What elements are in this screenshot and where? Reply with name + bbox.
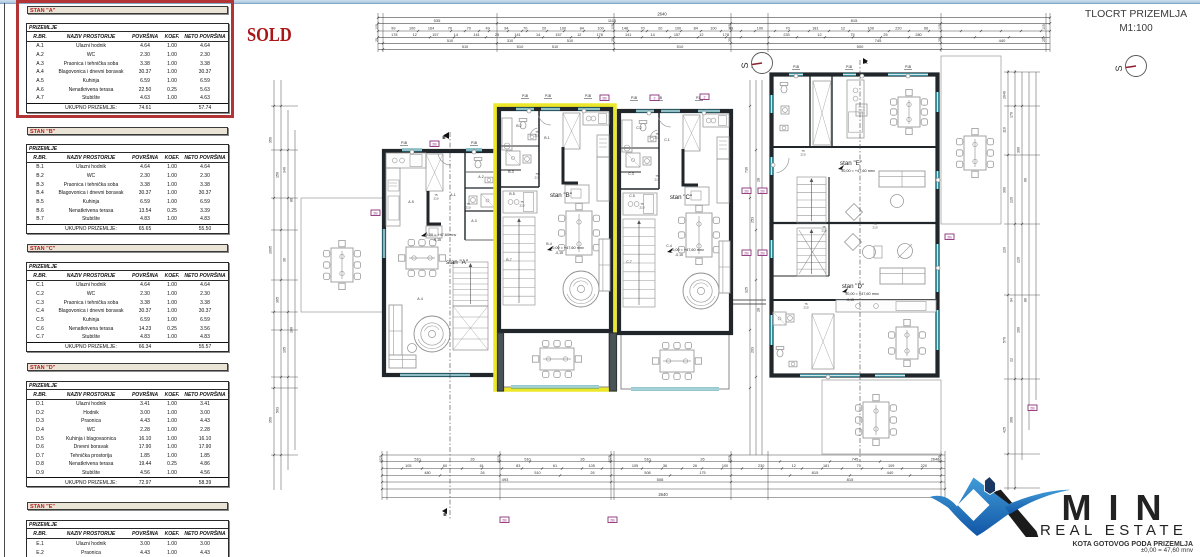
svg-text:2B: 2B — [502, 518, 507, 522]
svg-text:815: 815 — [812, 470, 819, 475]
svg-text:±0,00 = 47,60 mnv: ±0,00 = 47,60 mnv — [1141, 547, 1194, 554]
svg-text:440: 440 — [999, 38, 1006, 43]
svg-text:2B: 2B — [602, 96, 607, 100]
svg-text:350: 350 — [269, 137, 273, 143]
svg-text:1025: 1025 — [497, 455, 501, 462]
svg-text:12: 12 — [413, 33, 417, 37]
svg-text:A.1: A.1 — [450, 193, 455, 197]
svg-text:A.2: A.2 — [478, 175, 483, 179]
svg-text:210: 210 — [519, 204, 524, 208]
svg-text:510: 510 — [567, 39, 573, 43]
svg-text:stan "A": stan "A" — [446, 259, 468, 266]
svg-text:84: 84 — [580, 27, 584, 31]
svg-text:230: 230 — [758, 464, 764, 468]
svg-text:26: 26 — [580, 457, 584, 461]
svg-text:210: 210 — [800, 153, 805, 157]
svg-text:B.7: B.7 — [506, 258, 511, 262]
svg-text:14: 14 — [536, 33, 540, 37]
svg-text:A.5: A.5 — [408, 200, 413, 204]
svg-text:2B: 2B — [610, 518, 615, 522]
svg-text:-0,15: -0,15 — [555, 251, 563, 255]
svg-text:B.5: B.5 — [509, 192, 514, 196]
svg-text:-0,15: -0,15 — [675, 253, 683, 257]
svg-text:480: 480 — [424, 471, 430, 475]
svg-text:stan "B": stan "B" — [550, 192, 572, 199]
svg-text:94: 94 — [504, 27, 508, 31]
svg-text:26: 26 — [480, 471, 484, 475]
svg-text:12: 12 — [817, 33, 821, 37]
svg-text:164: 164 — [428, 27, 434, 31]
svg-text:210: 210 — [465, 206, 470, 210]
svg-text:510: 510 — [517, 44, 524, 49]
svg-text:510: 510 — [534, 471, 540, 475]
svg-text:25: 25 — [938, 38, 942, 42]
svg-text:535: 535 — [434, 18, 441, 23]
svg-text:440: 440 — [887, 470, 894, 475]
svg-text:P1B: P1B — [631, 96, 637, 100]
svg-text:210: 210 — [654, 178, 659, 182]
svg-text:25: 25 — [611, 38, 615, 42]
svg-text:815: 815 — [851, 18, 858, 23]
svg-text:220: 220 — [895, 27, 901, 31]
svg-text:150: 150 — [276, 172, 280, 178]
svg-text:160: 160 — [290, 327, 294, 333]
svg-text:26: 26 — [590, 471, 594, 475]
svg-text:493: 493 — [502, 477, 509, 482]
svg-text:500: 500 — [857, 44, 864, 49]
svg-text:28: 28 — [757, 308, 761, 312]
svg-text:70: 70 — [448, 27, 452, 31]
svg-text:100: 100 — [560, 27, 566, 31]
svg-text:350: 350 — [269, 417, 273, 423]
svg-text:160: 160 — [1017, 327, 1021, 333]
svg-text:-0,15: -0,15 — [846, 298, 854, 302]
svg-text:210: 210 — [534, 134, 539, 138]
svg-text:26: 26 — [700, 457, 704, 461]
svg-text:210: 210 — [433, 197, 438, 201]
svg-text:70: 70 — [523, 27, 527, 31]
svg-text:stan "D": stan "D" — [842, 283, 864, 290]
svg-text:66: 66 — [1024, 178, 1028, 182]
svg-text:2B: 2B — [744, 189, 749, 193]
svg-text:1115: 1115 — [608, 18, 617, 23]
svg-text:178: 178 — [723, 33, 729, 37]
svg-text:P1B: P1B — [471, 141, 477, 145]
svg-text:84: 84 — [694, 27, 698, 31]
svg-text:510: 510 — [677, 44, 684, 49]
svg-text:12: 12 — [841, 27, 845, 31]
svg-text:±0,00 = +47,60 mnv: ±0,00 = +47,60 mnv — [550, 246, 584, 250]
svg-text:365: 365 — [276, 297, 280, 303]
svg-text:210: 210 — [639, 206, 644, 210]
svg-text:100: 100 — [675, 27, 681, 31]
svg-text:100: 100 — [409, 27, 415, 31]
svg-text:220: 220 — [1010, 197, 1014, 203]
svg-text:M1:100: M1:100 — [1119, 23, 1153, 34]
svg-text:745: 745 — [875, 38, 882, 43]
svg-text:2B: 2B — [760, 189, 765, 193]
svg-text:105: 105 — [1042, 24, 1046, 30]
svg-text:425: 425 — [1003, 427, 1007, 433]
svg-text:C.3: C.3 — [628, 172, 634, 176]
svg-text:508: 508 — [644, 471, 650, 475]
svg-text:49: 49 — [485, 27, 489, 31]
svg-text:20: 20 — [542, 27, 546, 31]
svg-text:100: 100 — [710, 27, 716, 31]
svg-text:C.7: C.7 — [626, 260, 632, 264]
svg-text:148: 148 — [622, 27, 628, 31]
svg-text:233: 233 — [783, 33, 789, 37]
svg-text:510: 510 — [414, 457, 420, 461]
svg-text:12: 12 — [699, 33, 703, 37]
svg-text:730: 730 — [745, 167, 749, 173]
svg-text:2: 2 — [704, 95, 706, 99]
svg-text:2640: 2640 — [1003, 91, 1007, 99]
svg-text:210: 210 — [534, 176, 539, 180]
svg-text:stan "C": stan "C" — [670, 194, 692, 201]
svg-text:25: 25 — [375, 38, 379, 42]
svg-text:105: 105 — [405, 464, 411, 468]
svg-text:2640: 2640 — [658, 492, 668, 497]
svg-text:220: 220 — [921, 464, 927, 468]
svg-text:510: 510 — [447, 39, 453, 43]
svg-text:210: 210 — [821, 229, 826, 233]
svg-text:745: 745 — [852, 456, 859, 461]
svg-text:94: 94 — [1010, 298, 1014, 302]
svg-text:25: 25 — [728, 38, 732, 42]
svg-text:25: 25 — [495, 33, 499, 37]
svg-text:366: 366 — [1010, 417, 1014, 423]
svg-text:-0,15: -0,15 — [433, 238, 441, 242]
svg-text:TLOCRT PRIZEMLJA: TLOCRT PRIZEMLJA — [1085, 8, 1187, 20]
svg-text:510: 510 — [524, 457, 530, 461]
svg-text:175: 175 — [699, 471, 705, 475]
svg-text:157: 157 — [432, 33, 438, 37]
svg-text:253: 253 — [751, 217, 755, 223]
svg-text:141: 141 — [625, 33, 631, 37]
svg-text:12: 12 — [577, 33, 581, 37]
svg-text:178: 178 — [597, 33, 603, 37]
svg-text:340: 340 — [283, 167, 287, 173]
svg-text:70: 70 — [857, 464, 861, 468]
svg-text:508: 508 — [657, 477, 664, 482]
svg-text:105: 105 — [283, 347, 287, 353]
svg-text:A.4: A.4 — [417, 297, 422, 301]
svg-text:141: 141 — [514, 33, 520, 37]
svg-text:210: 210 — [803, 306, 808, 310]
svg-text:203: 203 — [751, 347, 755, 353]
svg-text:510: 510 — [462, 45, 468, 49]
svg-text:157: 157 — [674, 33, 680, 37]
svg-text:±0,00 = +47,60 mnv: ±0,00 = +47,60 mnv — [845, 292, 879, 296]
svg-text:105: 105 — [632, 464, 638, 468]
svg-text:70: 70 — [467, 27, 471, 31]
svg-text:14: 14 — [454, 33, 458, 37]
svg-text:105: 105 — [611, 24, 615, 30]
svg-text:181: 181 — [812, 27, 818, 31]
svg-text:503: 503 — [276, 407, 280, 413]
svg-text:105: 105 — [728, 24, 732, 30]
svg-text:280: 280 — [915, 33, 921, 37]
svg-text:109: 109 — [868, 27, 874, 31]
svg-text:1005: 1005 — [269, 246, 273, 254]
svg-text:36: 36 — [283, 258, 287, 262]
svg-text:310: 310 — [507, 39, 513, 43]
svg-text:P1B: P1B — [905, 65, 911, 69]
svg-text:99: 99 — [391, 27, 395, 31]
svg-text:109: 109 — [888, 464, 894, 468]
svg-text:70: 70 — [640, 27, 644, 31]
svg-text:REAL ESTATE: REAL ESTATE — [1040, 522, 1187, 539]
svg-text:100: 100 — [757, 27, 763, 31]
svg-text:28: 28 — [757, 178, 761, 182]
svg-text:61: 61 — [553, 464, 557, 468]
svg-text:210: 210 — [872, 226, 877, 230]
svg-text:±0,00 = +47,60mnv: ±0,00 = +47,60mnv — [424, 233, 457, 237]
svg-text:2B: 2B — [760, 251, 765, 255]
svg-text:570: 570 — [1003, 337, 1007, 343]
svg-text:B.3: B.3 — [508, 170, 513, 174]
svg-text:P1B: P1B — [585, 94, 591, 98]
svg-text:C.2: C.2 — [636, 126, 642, 130]
svg-text:100: 100 — [722, 464, 728, 468]
svg-text:P1B: P1B — [401, 141, 407, 145]
svg-text:C.1: C.1 — [664, 138, 670, 142]
svg-text:105: 105 — [938, 24, 942, 30]
svg-text:2: 2 — [654, 96, 656, 100]
svg-text:S: S — [1114, 65, 1124, 71]
svg-text:220: 220 — [1003, 247, 1007, 253]
svg-text:2B: 2B — [947, 235, 952, 239]
svg-text:1025: 1025 — [938, 455, 942, 462]
svg-text:A.3: A.3 — [471, 219, 476, 223]
svg-text:70: 70 — [785, 27, 789, 31]
svg-text:325: 325 — [745, 287, 749, 293]
svg-text:510: 510 — [644, 457, 650, 461]
svg-text:510: 510 — [552, 45, 558, 49]
svg-text:26: 26 — [693, 464, 697, 468]
svg-text:141: 141 — [473, 33, 479, 37]
svg-text:815: 815 — [847, 477, 854, 482]
svg-text:1025: 1025 — [379, 455, 383, 462]
svg-text:61: 61 — [480, 464, 484, 468]
svg-text:2B: 2B — [744, 251, 749, 255]
svg-text:2B: 2B — [373, 211, 378, 215]
svg-text:20: 20 — [658, 27, 662, 31]
svg-text:P1B: P1B — [846, 65, 852, 69]
svg-text:1025: 1025 — [728, 455, 732, 462]
svg-text:B.2: B.2 — [516, 124, 521, 128]
svg-text:14: 14 — [650, 33, 654, 37]
svg-text:P1B: P1B — [793, 65, 799, 69]
svg-text:P1B: P1B — [545, 94, 551, 98]
svg-text:±0,00 = +47,60 mnv: ±0,00 = +47,60 mnv — [841, 169, 875, 173]
svg-text:75: 75 — [850, 33, 854, 37]
svg-text:22: 22 — [1010, 358, 1014, 362]
svg-text:181: 181 — [823, 464, 829, 468]
svg-text:1025: 1025 — [608, 455, 612, 462]
svg-text:B.1: B.1 — [544, 136, 549, 140]
svg-text:170: 170 — [1010, 112, 1014, 118]
svg-text:2640: 2640 — [657, 12, 667, 17]
svg-text:25: 25 — [1042, 38, 1046, 42]
svg-text:36: 36 — [663, 464, 667, 468]
svg-text:P1B: P1B — [522, 94, 528, 98]
svg-text:±0,00 = +47,60 mnv: ±0,00 = +47,60 mnv — [670, 248, 704, 252]
svg-text:25: 25 — [883, 33, 887, 37]
svg-text:S: S — [740, 62, 750, 68]
svg-text:26: 26 — [470, 457, 474, 461]
svg-text:86: 86 — [1024, 298, 1028, 302]
svg-text:100: 100 — [597, 27, 603, 31]
svg-text:60: 60 — [443, 464, 447, 468]
svg-text:66: 66 — [924, 27, 928, 31]
svg-text:86: 86 — [290, 198, 294, 202]
svg-text:105: 105 — [589, 464, 595, 468]
svg-text:210: 210 — [654, 136, 659, 140]
svg-text:110: 110 — [1003, 127, 1007, 133]
svg-text:220: 220 — [1017, 257, 1021, 263]
svg-text:C.5: C.5 — [629, 194, 635, 198]
svg-text:300: 300 — [1003, 187, 1007, 193]
svg-text:105: 105 — [375, 24, 379, 30]
svg-text:178: 178 — [391, 33, 397, 37]
svg-text:12: 12 — [792, 464, 796, 468]
svg-text:2B: 2B — [432, 142, 437, 146]
svg-text:2B: 2B — [1030, 406, 1035, 410]
svg-text:157: 157 — [555, 33, 561, 37]
svg-text:300: 300 — [1017, 147, 1021, 153]
svg-text:83: 83 — [516, 464, 520, 468]
